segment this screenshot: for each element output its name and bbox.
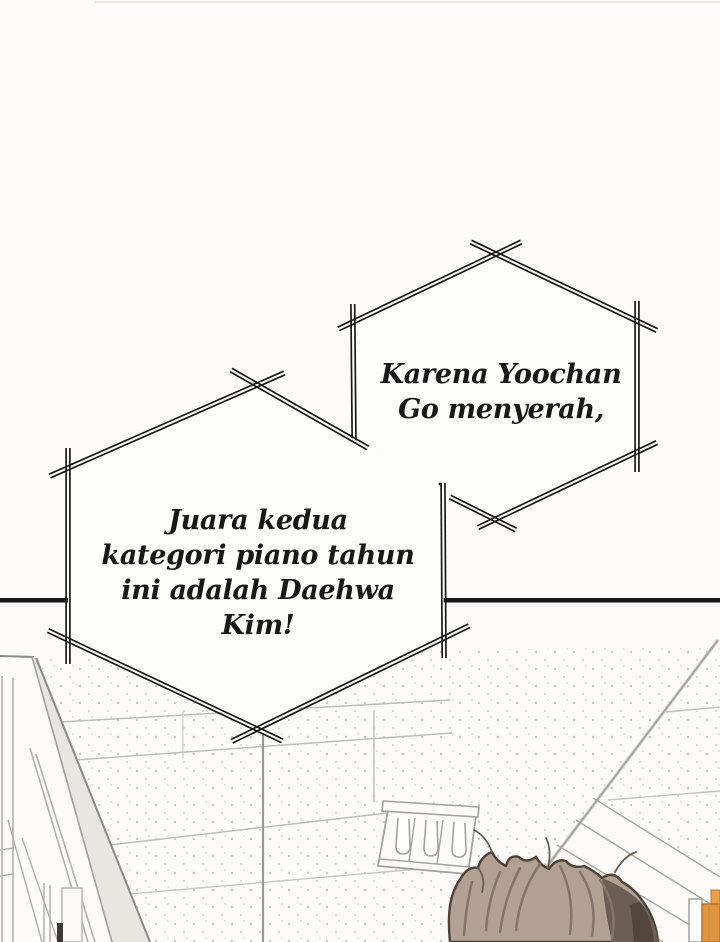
fluorescent-light-icon <box>378 801 479 874</box>
orange-door-top <box>711 890 720 905</box>
door-frame-post <box>689 899 702 942</box>
comic-page: Karena Yoochan Go menyerah, Juara kedua … <box>0 0 720 942</box>
orange-door <box>702 904 720 942</box>
window-pane <box>62 888 82 942</box>
comic-artwork <box>0 0 720 942</box>
window-latch <box>57 923 63 942</box>
